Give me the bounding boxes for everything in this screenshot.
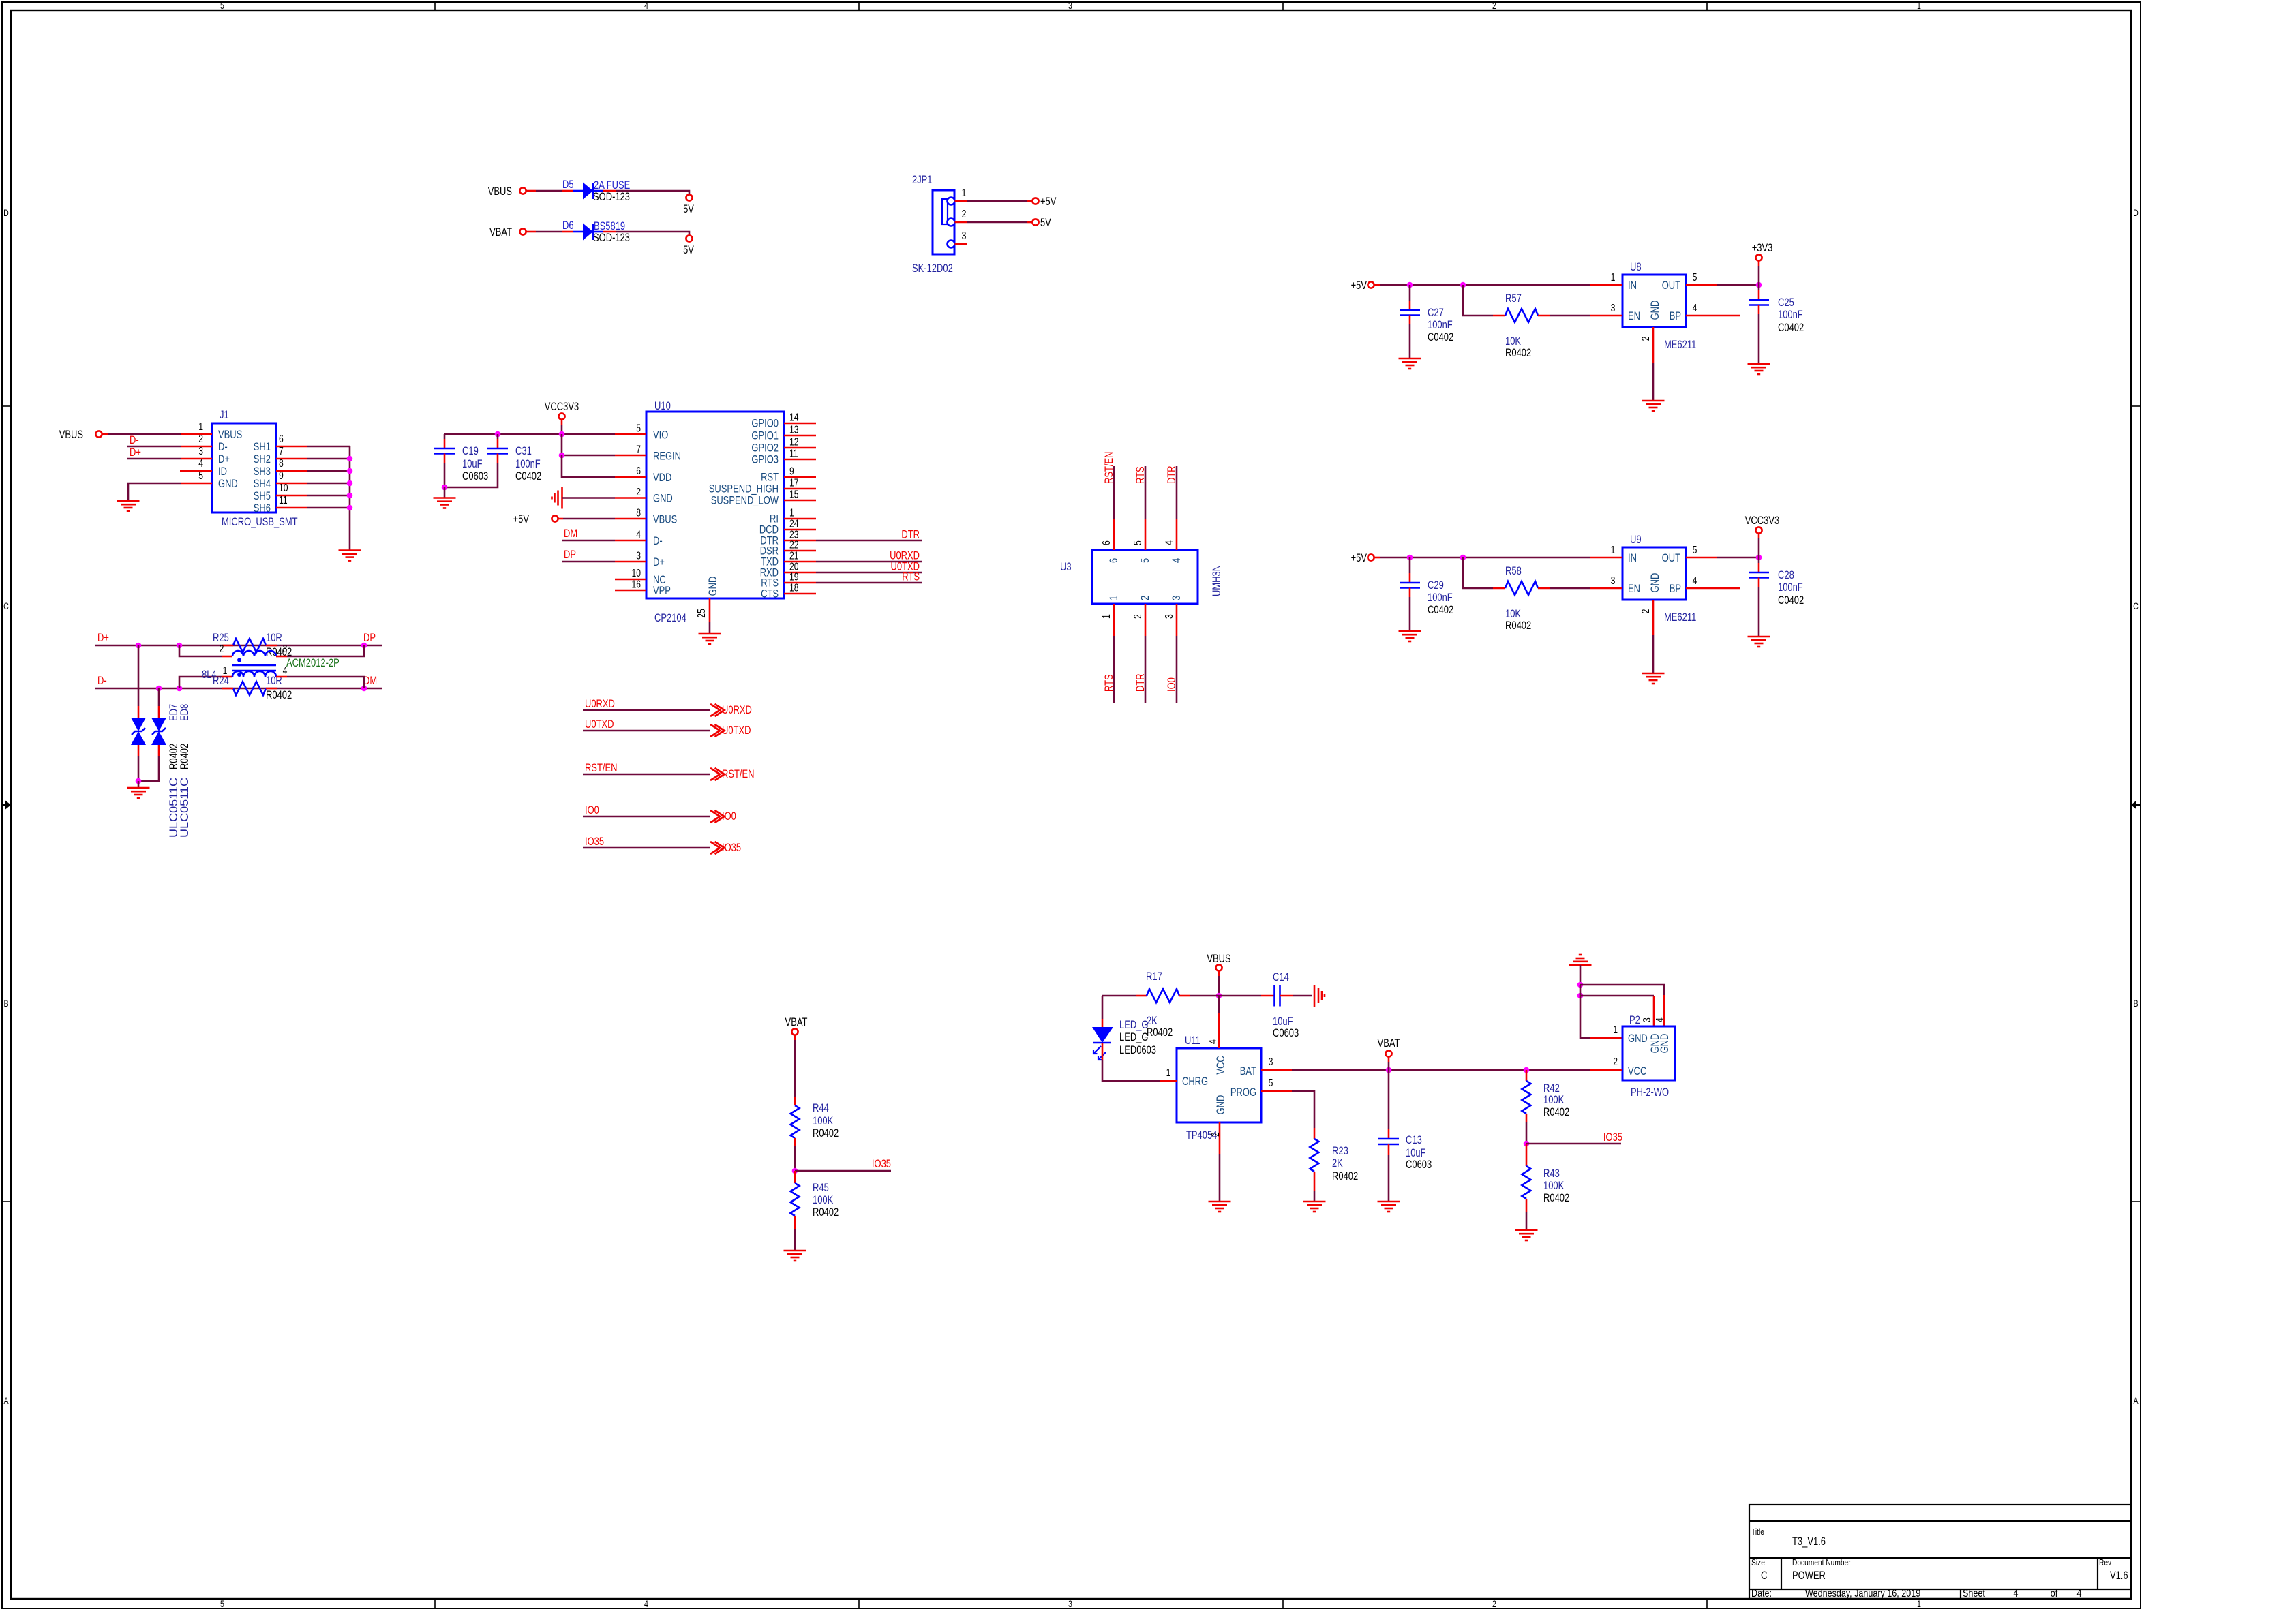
svg-text:VBUS: VBUS [218, 429, 242, 441]
svg-text:5: 5 [1269, 1077, 1273, 1089]
svg-text:D+: D+ [653, 556, 665, 568]
svg-text:of: of [2051, 1588, 2058, 1600]
svg-text:4: 4 [1207, 1039, 1219, 1044]
svg-text:2A FUSE: 2A FUSE [594, 179, 630, 192]
svg-text:5: 5 [636, 423, 641, 435]
svg-text:C0603: C0603 [1273, 1027, 1299, 1039]
svg-text:1: 1 [1917, 1, 1921, 11]
svg-text:14: 14 [789, 412, 799, 424]
svg-text:1: 1 [962, 187, 967, 199]
svg-text:BP: BP [1670, 583, 1681, 595]
svg-text:4: 4 [644, 1599, 648, 1609]
svg-text:4: 4 [1655, 1017, 1666, 1022]
svg-text:P2: P2 [1629, 1014, 1640, 1026]
svg-text:C0402: C0402 [1428, 331, 1453, 343]
svg-text:RTS: RTS [902, 571, 920, 583]
svg-text:VBUS: VBUS [488, 185, 512, 198]
svg-text:C0402: C0402 [1778, 322, 1804, 334]
svg-text:11: 11 [789, 448, 798, 460]
svg-text:GND: GND [1649, 573, 1661, 593]
svg-text:6: 6 [279, 433, 284, 445]
svg-text:SH2: SH2 [254, 453, 271, 465]
svg-text:3: 3 [1611, 575, 1616, 587]
svg-text:100nF: 100nF [1428, 319, 1453, 331]
svg-text:RST: RST [761, 472, 779, 484]
svg-text:R0402: R0402 [1505, 619, 1531, 632]
svg-text:8: 8 [636, 508, 641, 519]
svg-text:IN: IN [1628, 279, 1637, 292]
svg-text:C0603: C0603 [1406, 1159, 1432, 1171]
svg-text:U0TXD: U0TXD [722, 724, 751, 737]
svg-text:9: 9 [279, 470, 284, 482]
svg-text:C: C [3, 601, 9, 611]
svg-text:GPIO1: GPIO1 [751, 430, 779, 442]
svg-text:5: 5 [1132, 540, 1144, 545]
svg-text:A: A [3, 1396, 8, 1406]
svg-text:R43: R43 [1543, 1167, 1560, 1180]
svg-text:13: 13 [789, 425, 799, 436]
svg-text:D+: D+ [130, 446, 141, 459]
svg-text:7: 7 [279, 446, 284, 457]
svg-text:IO35: IO35 [722, 842, 741, 854]
svg-text:EN: EN [1628, 583, 1640, 595]
svg-text:B: B [3, 998, 8, 1009]
svg-text:U9: U9 [1630, 534, 1642, 546]
svg-text:C0402: C0402 [1778, 594, 1804, 607]
svg-text:4: 4 [1170, 558, 1183, 563]
svg-text:OUT: OUT [1662, 552, 1680, 564]
svg-text:100K: 100K [813, 1194, 833, 1206]
svg-text:VPP: VPP [653, 585, 671, 597]
svg-text:2K: 2K [1332, 1157, 1343, 1169]
svg-text:5V: 5V [683, 203, 694, 215]
svg-text:VCC: VCC [1215, 1056, 1227, 1074]
svg-text:V1.6: V1.6 [2110, 1570, 2128, 1582]
svg-text:24: 24 [789, 519, 799, 530]
svg-text:VCC3V3: VCC3V3 [1745, 515, 1779, 527]
svg-text:ED8: ED8 [179, 704, 191, 721]
svg-text:R42: R42 [1543, 1082, 1560, 1095]
svg-text:C31: C31 [515, 445, 532, 457]
svg-text:4: 4 [644, 1, 648, 11]
svg-text:R0402: R0402 [1505, 347, 1531, 359]
svg-text:U10: U10 [654, 400, 671, 412]
svg-text:R58: R58 [1505, 565, 1522, 577]
svg-text:VDD: VDD [653, 472, 671, 484]
svg-text:6: 6 [1101, 540, 1113, 545]
svg-text:SOD-123: SOD-123 [593, 232, 630, 244]
svg-text:1: 1 [1101, 614, 1113, 619]
svg-text:1: 1 [1611, 545, 1616, 556]
svg-text:3: 3 [1068, 1599, 1072, 1609]
svg-text:BS5819: BS5819 [594, 220, 625, 232]
svg-text:C29: C29 [1428, 579, 1444, 592]
svg-text:21: 21 [789, 551, 799, 562]
svg-text:RTS: RTS [1103, 674, 1115, 692]
svg-text:IN: IN [1628, 552, 1637, 564]
svg-text:DP: DP [363, 632, 376, 644]
svg-text:3: 3 [198, 446, 203, 457]
svg-text:D6: D6 [562, 219, 574, 232]
svg-text:D-: D- [653, 535, 663, 547]
svg-text:2: 2 [198, 433, 203, 445]
svg-text:1: 1 [1613, 1024, 1618, 1036]
svg-text:BAT: BAT [1240, 1065, 1256, 1077]
svg-text:Size: Size [1751, 1557, 1765, 1567]
svg-text:+3V3: +3V3 [1752, 242, 1773, 254]
svg-text:SUSPEND_LOW: SUSPEND_LOW [711, 495, 779, 507]
svg-text:RST/EN: RST/EN [585, 762, 618, 774]
svg-text:C27: C27 [1428, 307, 1444, 319]
svg-text:R0402: R0402 [1332, 1170, 1358, 1182]
svg-text:Title: Title [1751, 1527, 1764, 1537]
svg-text:U8: U8 [1630, 261, 1642, 273]
svg-text:OUT: OUT [1662, 279, 1680, 292]
svg-text:R23: R23 [1332, 1145, 1348, 1157]
svg-text:GPIO2: GPIO2 [751, 442, 779, 455]
svg-text:100nF: 100nF [515, 458, 541, 470]
svg-text:R0402: R0402 [813, 1127, 839, 1139]
svg-text:3: 3 [1611, 303, 1616, 314]
svg-text:4: 4 [2014, 1588, 2019, 1600]
svg-text:2: 2 [1492, 1, 1496, 11]
svg-text:D-: D- [97, 675, 107, 687]
svg-text:6: 6 [636, 465, 641, 477]
svg-text:4: 4 [2077, 1588, 2082, 1600]
svg-text:VBAT: VBAT [785, 1016, 808, 1028]
svg-text:5: 5 [1693, 545, 1697, 556]
svg-text:SH5: SH5 [254, 490, 271, 502]
svg-text:+5V: +5V [1351, 552, 1367, 564]
svg-text:100K: 100K [1543, 1180, 1564, 1192]
svg-text:GPIO3: GPIO3 [751, 454, 779, 466]
svg-text:2: 2 [962, 209, 967, 220]
svg-text:D: D [2133, 208, 2139, 218]
svg-text:4: 4 [1693, 575, 1697, 587]
svg-text:C19: C19 [462, 445, 479, 457]
svg-text:SUSPEND_HIGH: SUSPEND_HIGH [709, 483, 779, 495]
svg-text:16: 16 [632, 579, 641, 591]
svg-text:SK-12D02: SK-12D02 [912, 262, 953, 275]
svg-text:R25: R25 [213, 632, 229, 644]
svg-text:3: 3 [636, 551, 641, 562]
svg-text:3: 3 [1642, 1017, 1653, 1022]
svg-text:PROG: PROG [1230, 1086, 1256, 1099]
svg-text:ULC0511C: ULC0511C [179, 778, 191, 838]
svg-text:RST/EN: RST/EN [1103, 452, 1115, 485]
svg-text:B: B [2133, 998, 2138, 1009]
svg-text:VBAT: VBAT [489, 226, 512, 239]
svg-text:8: 8 [279, 458, 284, 470]
svg-text:100nF: 100nF [1428, 592, 1453, 604]
svg-text:Document Number: Document Number [1792, 1557, 1851, 1567]
svg-text:ME6211: ME6211 [1664, 339, 1696, 351]
svg-text:T3_V1.6: T3_V1.6 [1792, 1535, 1826, 1548]
svg-text:3: 3 [1068, 1, 1072, 11]
svg-text:ID: ID [218, 465, 227, 478]
svg-text:3: 3 [1164, 614, 1175, 619]
svg-text:IO35: IO35 [1603, 1131, 1622, 1144]
svg-text:10uF: 10uF [1273, 1015, 1293, 1028]
svg-text:5: 5 [220, 1, 224, 11]
svg-text:ME6211: ME6211 [1664, 611, 1696, 624]
svg-text:GPIO0: GPIO0 [751, 418, 779, 430]
svg-text:R0402: R0402 [266, 689, 292, 701]
svg-text:22: 22 [789, 540, 799, 551]
svg-text:R0402: R0402 [1543, 1192, 1569, 1204]
svg-text:R0402: R0402 [1543, 1106, 1569, 1118]
svg-text:R0402: R0402 [813, 1206, 839, 1219]
svg-text:R57: R57 [1505, 292, 1522, 305]
svg-text:C14: C14 [1273, 971, 1289, 983]
svg-text:9: 9 [789, 466, 794, 478]
svg-text:EN: EN [1628, 310, 1640, 322]
svg-text:GND: GND [1659, 1034, 1671, 1054]
svg-text:2JP1: 2JP1 [912, 174, 933, 186]
svg-text:IO0: IO0 [722, 810, 736, 823]
svg-text:7: 7 [636, 444, 641, 456]
svg-text:4: 4 [198, 458, 203, 470]
svg-text:VBUS: VBUS [59, 429, 83, 441]
svg-text:10: 10 [632, 568, 641, 579]
svg-text:ACM2012-2P: ACM2012-2P [286, 657, 339, 669]
svg-text:R45: R45 [813, 1182, 829, 1194]
svg-text:R17: R17 [1146, 970, 1162, 983]
svg-text:5: 5 [198, 470, 203, 482]
svg-text:GND: GND [1649, 301, 1661, 320]
svg-text:VCC3V3: VCC3V3 [545, 401, 579, 413]
svg-text:1: 1 [1917, 1599, 1921, 1609]
svg-text:VCC: VCC [1628, 1065, 1646, 1077]
svg-text:2: 2 [1492, 1599, 1496, 1609]
svg-text:D5: D5 [562, 179, 574, 191]
svg-text:5: 5 [1139, 558, 1151, 563]
svg-text:VIO: VIO [653, 429, 668, 442]
svg-text:POWER: POWER [1792, 1570, 1826, 1582]
svg-text:LED_G: LED_G [1119, 1019, 1149, 1031]
svg-text:11: 11 [279, 495, 288, 506]
svg-text:VBUS: VBUS [1207, 953, 1230, 965]
svg-text:R44: R44 [813, 1102, 829, 1114]
svg-text:UMH3N: UMH3N [1211, 565, 1223, 596]
svg-text:2: 2 [1139, 596, 1151, 600]
svg-text:+5V: +5V [1351, 279, 1367, 292]
svg-text:DP: DP [564, 549, 576, 561]
svg-text:IO0: IO0 [1166, 677, 1178, 692]
svg-text:SH4: SH4 [254, 478, 271, 490]
svg-text:U3: U3 [1060, 561, 1072, 573]
svg-text:IO35: IO35 [585, 836, 604, 848]
svg-text:GND: GND [653, 493, 673, 505]
svg-text:10R: 10R [266, 632, 282, 644]
svg-text:3: 3 [1269, 1056, 1273, 1068]
svg-text:5: 5 [1693, 272, 1697, 284]
svg-text:1: 1 [1108, 596, 1120, 600]
svg-text:Date:: Date: [1751, 1588, 1772, 1600]
svg-text:SH1: SH1 [254, 441, 271, 453]
svg-text:2: 2 [220, 643, 224, 655]
svg-text:C0402: C0402 [515, 470, 541, 483]
svg-text:12: 12 [789, 437, 799, 448]
svg-text:10uF: 10uF [462, 458, 483, 470]
svg-text:VBUS: VBUS [653, 514, 677, 526]
svg-text:2: 2 [636, 487, 641, 498]
svg-text:U0TXD: U0TXD [585, 718, 614, 731]
svg-text:1: 1 [1166, 1067, 1171, 1079]
svg-text:A: A [2133, 1396, 2138, 1406]
svg-text:5: 5 [220, 1599, 224, 1609]
svg-text:15: 15 [789, 489, 799, 501]
svg-text:3: 3 [283, 643, 288, 655]
svg-text:C0603: C0603 [462, 470, 488, 483]
svg-text:2: 2 [1132, 614, 1144, 619]
svg-text:6: 6 [1108, 558, 1120, 563]
svg-text:100K: 100K [813, 1115, 833, 1127]
svg-text:IO0: IO0 [585, 804, 599, 816]
svg-text:GND: GND [707, 577, 719, 596]
svg-text:18: 18 [789, 583, 799, 594]
svg-text:10: 10 [279, 483, 288, 494]
svg-text:100nF: 100nF [1778, 581, 1803, 594]
svg-text:25: 25 [696, 609, 708, 618]
svg-text:J1: J1 [220, 409, 229, 421]
svg-text:REGIN: REGIN [653, 450, 681, 463]
svg-text:CP2104: CP2104 [654, 612, 686, 624]
svg-text:D-: D- [218, 441, 228, 453]
svg-text:1: 1 [1611, 272, 1616, 284]
svg-text:LED_G: LED_G [1119, 1031, 1149, 1043]
svg-text:100nF: 100nF [1778, 309, 1803, 321]
svg-text:C: C [2133, 601, 2139, 611]
svg-text:C0402: C0402 [1428, 604, 1453, 616]
svg-text:19: 19 [789, 572, 799, 583]
svg-text:17: 17 [789, 478, 799, 489]
svg-text:C28: C28 [1778, 569, 1794, 581]
svg-text:U11: U11 [1185, 1035, 1200, 1047]
svg-text:RTS: RTS [1134, 466, 1147, 484]
svg-text:U0RXD: U0RXD [585, 698, 615, 710]
svg-text:3: 3 [962, 230, 967, 242]
svg-text:1: 1 [789, 508, 794, 519]
svg-text:Wednesday, January 16, 2019: Wednesday, January 16, 2019 [1805, 1588, 1920, 1600]
svg-text:RST/EN: RST/EN [722, 768, 755, 780]
svg-text:+5V: +5V [1040, 196, 1056, 208]
svg-text:DTR: DTR [1166, 465, 1178, 484]
svg-text:3: 3 [1170, 596, 1183, 600]
svg-text:4: 4 [636, 530, 641, 541]
svg-text:10uF: 10uF [1406, 1147, 1426, 1159]
svg-text:U0RXD: U0RXD [722, 704, 752, 716]
svg-text:4: 4 [1693, 303, 1697, 314]
svg-text:2: 2 [1613, 1056, 1618, 1068]
svg-text:+5V: +5V [513, 513, 529, 525]
svg-text:D+: D+ [218, 453, 230, 465]
svg-text:10K: 10K [1505, 608, 1521, 620]
svg-text:LED0603: LED0603 [1119, 1044, 1156, 1056]
svg-text:GND: GND [1628, 1032, 1648, 1045]
svg-text:R0402: R0402 [1147, 1026, 1173, 1039]
svg-text:D: D [3, 208, 9, 218]
svg-text:2: 2 [1640, 609, 1652, 614]
svg-text:5V: 5V [1040, 217, 1051, 229]
svg-text:IO35: IO35 [872, 1158, 891, 1170]
svg-text:GND: GND [218, 478, 238, 490]
svg-text:100K: 100K [1543, 1094, 1564, 1106]
svg-text:Rev: Rev [2099, 1557, 2111, 1567]
svg-text:C25: C25 [1778, 296, 1794, 309]
svg-text:CTS: CTS [761, 588, 779, 600]
svg-text:1: 1 [198, 421, 203, 433]
svg-text:C: C [1761, 1570, 1767, 1582]
svg-text:D+: D+ [97, 632, 109, 644]
svg-text:10K: 10K [1505, 335, 1521, 348]
svg-text:SH6: SH6 [254, 502, 271, 515]
svg-text:D-: D- [130, 434, 139, 446]
svg-text:8L4: 8L4 [202, 669, 217, 681]
svg-text:R0402: R0402 [179, 744, 191, 769]
svg-text:SH3: SH3 [254, 465, 271, 478]
svg-text:DM: DM [363, 675, 377, 687]
svg-text:C13: C13 [1406, 1134, 1422, 1146]
svg-text:VBAT: VBAT [1378, 1037, 1400, 1050]
svg-text:Sheet: Sheet [1963, 1588, 1985, 1600]
svg-text:5V: 5V [683, 244, 694, 256]
svg-text:MICRO_USB_SMT: MICRO_USB_SMT [222, 516, 298, 528]
svg-text:DTR: DTR [901, 529, 920, 541]
svg-text:BP: BP [1670, 310, 1681, 322]
svg-text:DTR: DTR [1134, 673, 1147, 692]
svg-text:1: 1 [223, 665, 228, 677]
svg-text:GND: GND [1215, 1095, 1227, 1115]
svg-text:PH-2-WO: PH-2-WO [1631, 1086, 1669, 1099]
svg-text:2: 2 [1640, 337, 1652, 341]
svg-text:CHRG: CHRG [1182, 1075, 1208, 1088]
svg-text:DM: DM [564, 527, 577, 540]
svg-text:2: 2 [1210, 1132, 1222, 1137]
svg-text:SOD-123: SOD-123 [593, 191, 630, 203]
svg-text:4: 4 [1164, 540, 1175, 545]
